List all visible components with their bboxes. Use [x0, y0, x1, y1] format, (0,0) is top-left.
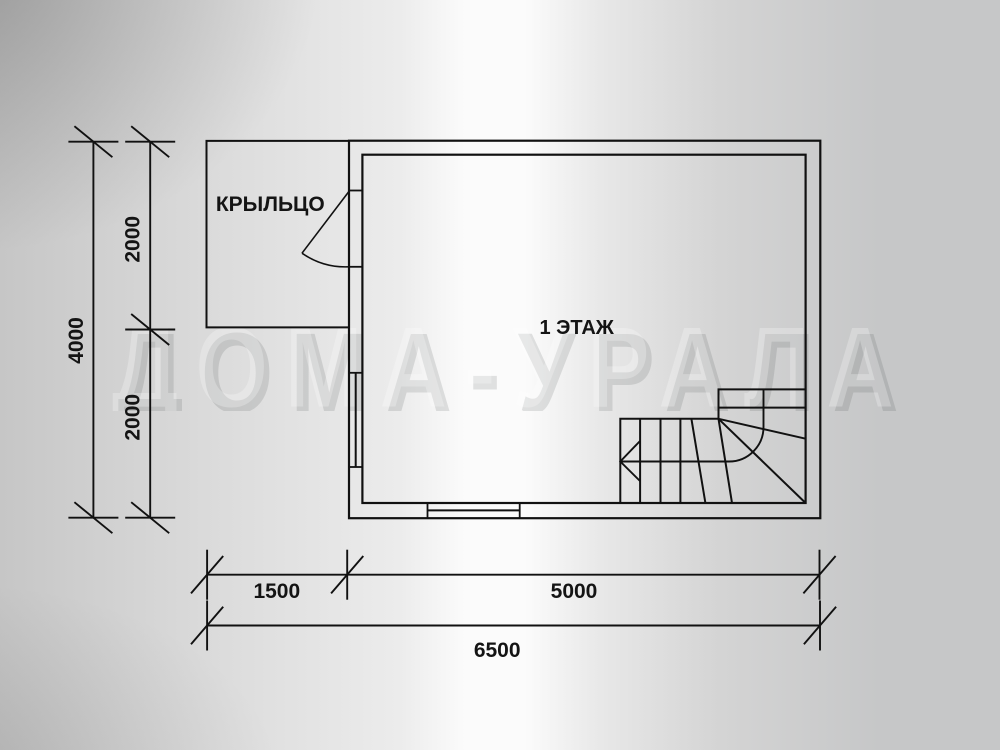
svg-text:4000: 4000	[65, 317, 88, 364]
svg-text:2000: 2000	[121, 394, 144, 441]
svg-text:ДОМА-УРАЛА: ДОМА-УРАЛА	[112, 305, 894, 432]
svg-text:6500: 6500	[474, 639, 521, 662]
svg-text:2000: 2000	[121, 216, 144, 263]
svg-text:5000: 5000	[551, 580, 598, 603]
svg-text:1500: 1500	[253, 580, 300, 603]
svg-text:КРЫЛЬЦО: КРЫЛЬЦО	[216, 193, 325, 216]
svg-text:1 ЭТАЖ: 1 ЭТАЖ	[540, 317, 615, 339]
